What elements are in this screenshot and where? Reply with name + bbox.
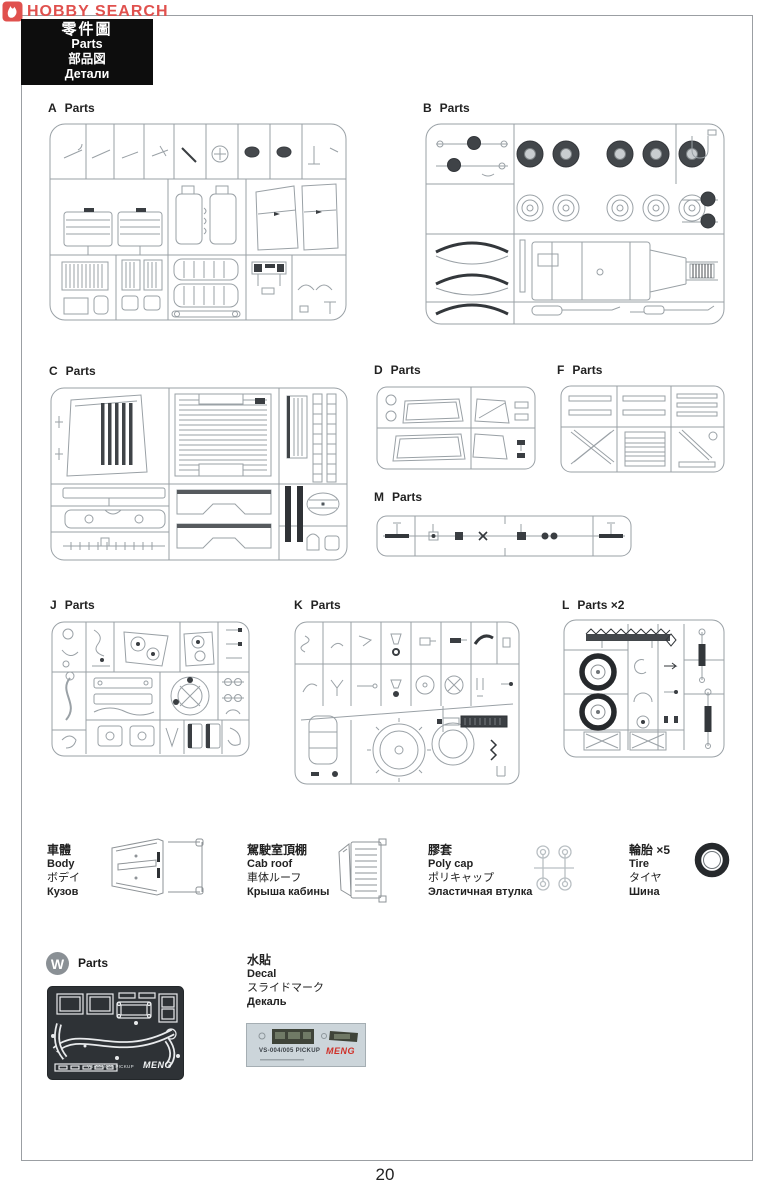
decal-sheet-title: VS-004/005 PICKUP (259, 1048, 320, 1054)
sprue-l-drawing (562, 618, 726, 759)
cab-roof-name-block: 駕駛室頂棚 Cab roof 車体ルーフ Крыша кабины (247, 843, 329, 899)
poly-cap-name-block: 膠套 Poly cap ポリキャップ Эластичная втулка (428, 843, 532, 899)
cab-roof-drawing (333, 836, 391, 911)
flame-icon (2, 1, 23, 22)
label-sprue-b: BParts (423, 101, 470, 115)
header-line-ja: 部品図 (21, 52, 153, 67)
page-number: 20 (0, 1165, 770, 1185)
label-sprue-d: DParts (374, 363, 421, 377)
header-line-zh: 零件圖 (21, 22, 153, 37)
sprue-f-drawing (559, 384, 726, 474)
label-sprue-l: LParts ×2 (562, 598, 624, 612)
tire-name-block: 輪胎 ×5 Tire タイヤ Шина (629, 843, 670, 899)
sprue-j-drawing (50, 620, 251, 758)
sprue-k-drawing (293, 620, 521, 786)
fret-meng-logo: MENG (143, 1060, 172, 1070)
decal-name-block: 水貼 Decal スライドマーク Декаль (247, 953, 324, 1009)
logo-brand-text: HOBBY SEARCH (27, 3, 169, 21)
label-sprue-a: AParts (48, 101, 95, 115)
parts-header-box: 零件圖 Parts 部品図 Детали (21, 19, 153, 85)
label-sprue-j: JParts (50, 598, 95, 612)
fret-kit-text: VS-004/005 PICKUP (87, 1064, 134, 1069)
sprue-c-drawing (49, 386, 349, 562)
page-border-left (21, 15, 22, 1161)
pe-fret-drawing: VS-004/005 PICKUP MENG (47, 986, 184, 1080)
tire-drawing (693, 841, 731, 884)
poly-cap-drawing (530, 844, 578, 897)
sprue-b-drawing (424, 122, 726, 326)
header-line-ru: Детали (21, 67, 153, 82)
manual-page: HOBBY SEARCH 零件圖 Parts 部品図 Детали AParts… (0, 0, 770, 1200)
label-sprue-f: FParts (557, 363, 602, 377)
page-border-right (752, 15, 753, 1161)
w-parts-label: Parts (78, 956, 108, 970)
decal-meng-logo: MENG (326, 1046, 355, 1056)
label-sprue-c: CParts (49, 364, 96, 378)
sprue-d-drawing (375, 385, 537, 471)
sprue-a-drawing (48, 122, 348, 322)
body-drawing (100, 834, 210, 909)
body-name-block: 車體 Body ボデイ Кузов (47, 843, 80, 899)
header-line-en: Parts (21, 37, 153, 52)
decal-sheet-drawing: VS-004/005 PICKUP MENG (246, 1023, 366, 1067)
w-parts-badge: W (46, 952, 69, 975)
label-sprue-m: MParts (374, 490, 422, 504)
page-border-bottom (21, 1160, 753, 1161)
label-sprue-k: KParts (294, 598, 341, 612)
sprue-m-drawing (375, 514, 633, 558)
